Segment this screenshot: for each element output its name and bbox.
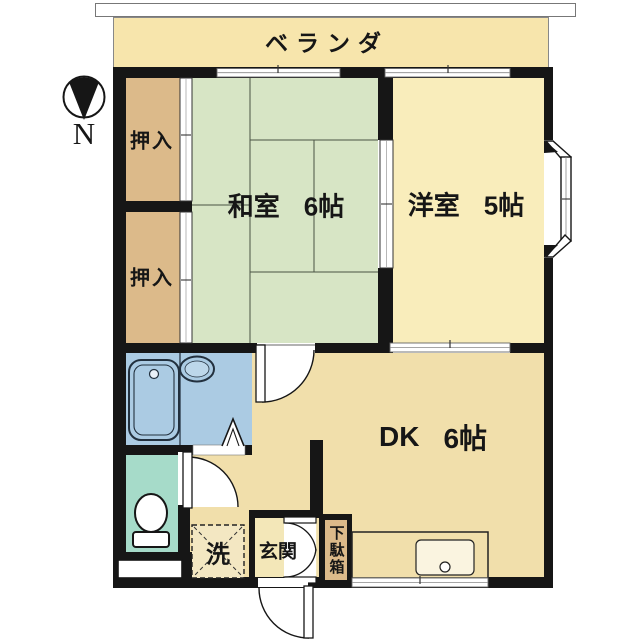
wall: [378, 67, 393, 140]
balcony-label: ベランダ: [265, 24, 389, 58]
room-size: 5帖: [484, 186, 524, 223]
laundry-label: 洗: [206, 535, 230, 570]
wall: [510, 343, 553, 353]
closet-top-label: 押入: [130, 125, 174, 154]
compass-north-label: N: [73, 116, 95, 152]
shoe-cabinet: 下駄箱: [325, 520, 347, 580]
closet-bottom-label: 押入: [130, 262, 174, 291]
wall: [249, 510, 255, 588]
wall: [113, 343, 257, 353]
wall: [113, 552, 192, 588]
entrance-label: 玄関: [259, 537, 297, 564]
room-name: 洋室: [408, 186, 460, 223]
sliding-door-icon: [380, 140, 393, 268]
wall: [113, 201, 192, 212]
wall: [113, 67, 553, 78]
wall: [113, 445, 252, 455]
toilet-room-area: [126, 455, 178, 552]
bay-window-icon: [544, 140, 571, 258]
floor-plan: 下駄箱: [0, 0, 640, 640]
wall: [310, 440, 323, 518]
bathroom-area: [126, 353, 252, 445]
shoe-cabinet-label: 下駄箱: [326, 525, 347, 576]
compass-icon: [64, 77, 105, 121]
room-name: DK: [379, 421, 419, 453]
western-room-label: 洋室 5帖: [408, 186, 524, 223]
room-name: 和室: [228, 187, 280, 224]
wall: [544, 67, 553, 140]
roof-eave: [95, 3, 576, 17]
room-size: 6帖: [443, 417, 487, 457]
wall: [249, 510, 317, 518]
room-size: 6帖: [304, 187, 344, 224]
wall: [378, 268, 393, 353]
dining-kitchen-label: DK 6帖: [379, 417, 487, 457]
wall: [544, 258, 553, 588]
wall: [113, 67, 126, 588]
japanese-room-label: 和室 6帖: [228, 187, 344, 224]
